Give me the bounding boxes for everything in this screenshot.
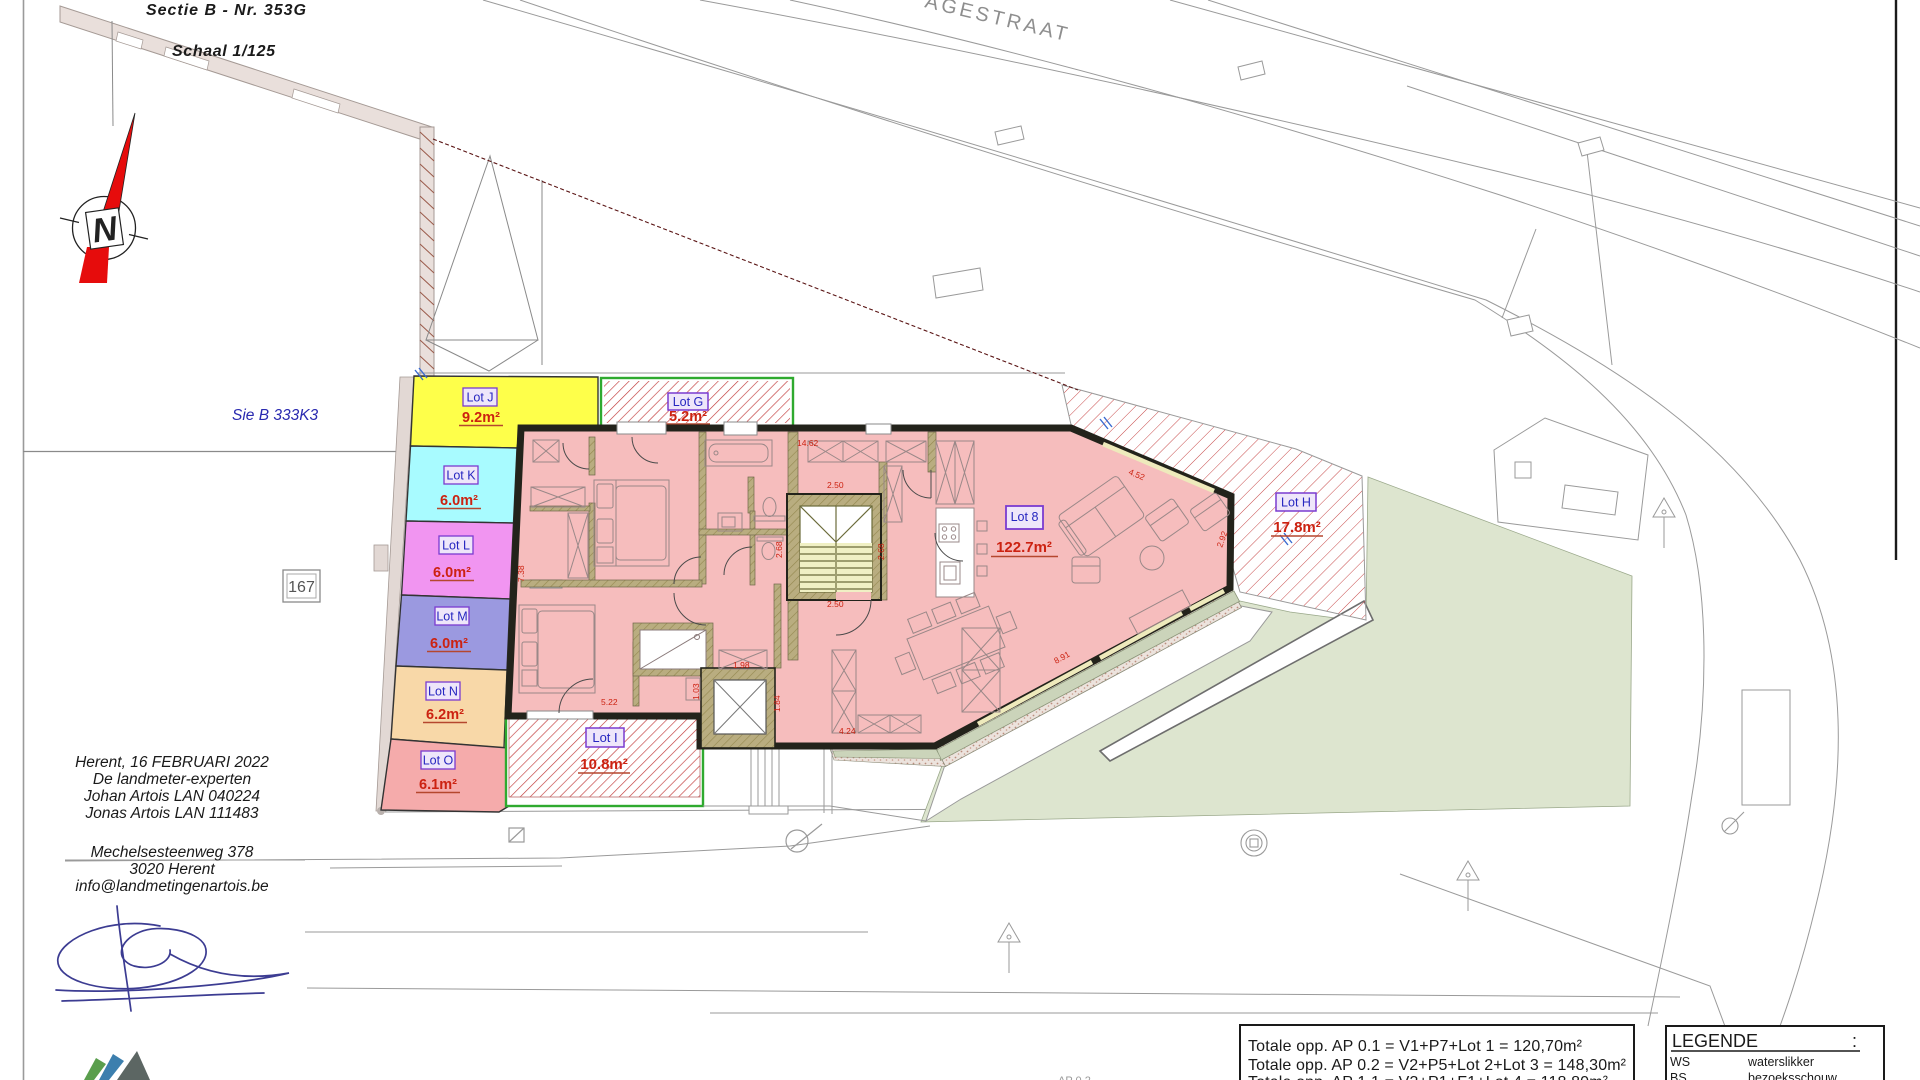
svg-text:10.8m²: 10.8m² — [580, 756, 628, 773]
svg-text:Jonas Artois LAN 111483: Jonas Artois LAN 111483 — [85, 805, 259, 822]
svg-text:Totale opp. AP 1.1 = V3+P1+F1+: Totale opp. AP 1.1 = V3+P1+F1+Lot 4 = 11… — [1248, 1074, 1609, 1080]
svg-text:Herent, 16 FEBRUARI 2022: Herent, 16 FEBRUARI 2022 — [75, 754, 269, 771]
svg-text:9.2m²: 9.2m² — [462, 410, 500, 426]
svg-text:Mechelsesteenweg 378: Mechelsesteenweg 378 — [91, 844, 254, 861]
svg-text:1.03: 1.03 — [691, 683, 701, 700]
svg-text:1.98: 1.98 — [733, 660, 750, 670]
svg-text:5.22: 5.22 — [601, 697, 618, 707]
svg-text:Lot I: Lot I — [592, 730, 617, 745]
svg-text:Johan Artois LAN 040224: Johan Artois LAN 040224 — [83, 788, 260, 805]
svg-text:Lot N: Lot N — [428, 685, 458, 699]
svg-text:bezoeksschouw: bezoeksschouw — [1748, 1071, 1838, 1080]
svg-text:2.68: 2.68 — [876, 543, 886, 560]
svg-text:14.62: 14.62 — [797, 438, 819, 448]
svg-text:6.0m²: 6.0m² — [433, 565, 471, 581]
svg-text:122.7m²: 122.7m² — [996, 539, 1052, 556]
svg-text:6.1m²: 6.1m² — [419, 777, 457, 793]
svg-text:Lot K: Lot K — [446, 469, 476, 483]
svg-text:6.0m²: 6.0m² — [430, 636, 468, 652]
svg-text::: : — [1852, 1031, 1857, 1051]
svg-text:Lot H: Lot H — [1281, 496, 1311, 510]
svg-text:2.50: 2.50 — [827, 599, 844, 609]
svg-text:Lot L: Lot L — [442, 539, 470, 553]
svg-text:BS: BS — [1670, 1071, 1687, 1080]
svg-text:17.8m²: 17.8m² — [1273, 519, 1321, 536]
svg-text:LEGENDE: LEGENDE — [1672, 1031, 1758, 1051]
svg-text:Lot J: Lot J — [466, 391, 493, 405]
svg-text:167: 167 — [288, 579, 315, 596]
svg-text:Lot O: Lot O — [423, 754, 454, 768]
svg-text:Schaal 1/125: Schaal 1/125 — [172, 43, 276, 60]
svg-text:2.50: 2.50 — [827, 480, 844, 490]
svg-text:AP 0.2: AP 0.2 — [1058, 1075, 1091, 1080]
svg-text:Totale opp. AP 0.2 = V2+P5+Lot: Totale opp. AP 0.2 = V2+P5+Lot 2+Lot 3 =… — [1248, 1057, 1627, 1074]
svg-text:1.84: 1.84 — [772, 695, 782, 712]
svg-text:Sie B 333K3: Sie B 333K3 — [232, 407, 319, 424]
svg-text:Lot 8: Lot 8 — [1011, 510, 1039, 524]
svg-text:De landmeter-experten: De landmeter-experten — [93, 771, 251, 788]
svg-text:2.68: 2.68 — [774, 541, 784, 558]
svg-text:waterslikker: waterslikker — [1747, 1055, 1814, 1069]
svg-text:WS: WS — [1670, 1055, 1690, 1069]
svg-text:5.2m²: 5.2m² — [669, 409, 707, 425]
svg-text:Sectie B - Nr. 353G: Sectie B - Nr. 353G — [146, 2, 306, 19]
svg-text:7.38: 7.38 — [516, 565, 526, 582]
svg-text:Lot G: Lot G — [673, 395, 704, 409]
svg-text:info@landmetingenartois.be: info@landmetingenartois.be — [75, 878, 269, 895]
svg-text:6.0m²: 6.0m² — [440, 493, 478, 509]
svg-text:3020 Herent: 3020 Herent — [129, 861, 215, 878]
svg-text:Lot M: Lot M — [436, 610, 467, 624]
svg-text:Totale opp. AP 0.1 = V1+P7+Lot: Totale opp. AP 0.1 = V1+P7+Lot 1 = 120,7… — [1248, 1038, 1583, 1055]
svg-text:6.2m²: 6.2m² — [426, 707, 464, 723]
svg-text:4.24: 4.24 — [839, 726, 856, 736]
